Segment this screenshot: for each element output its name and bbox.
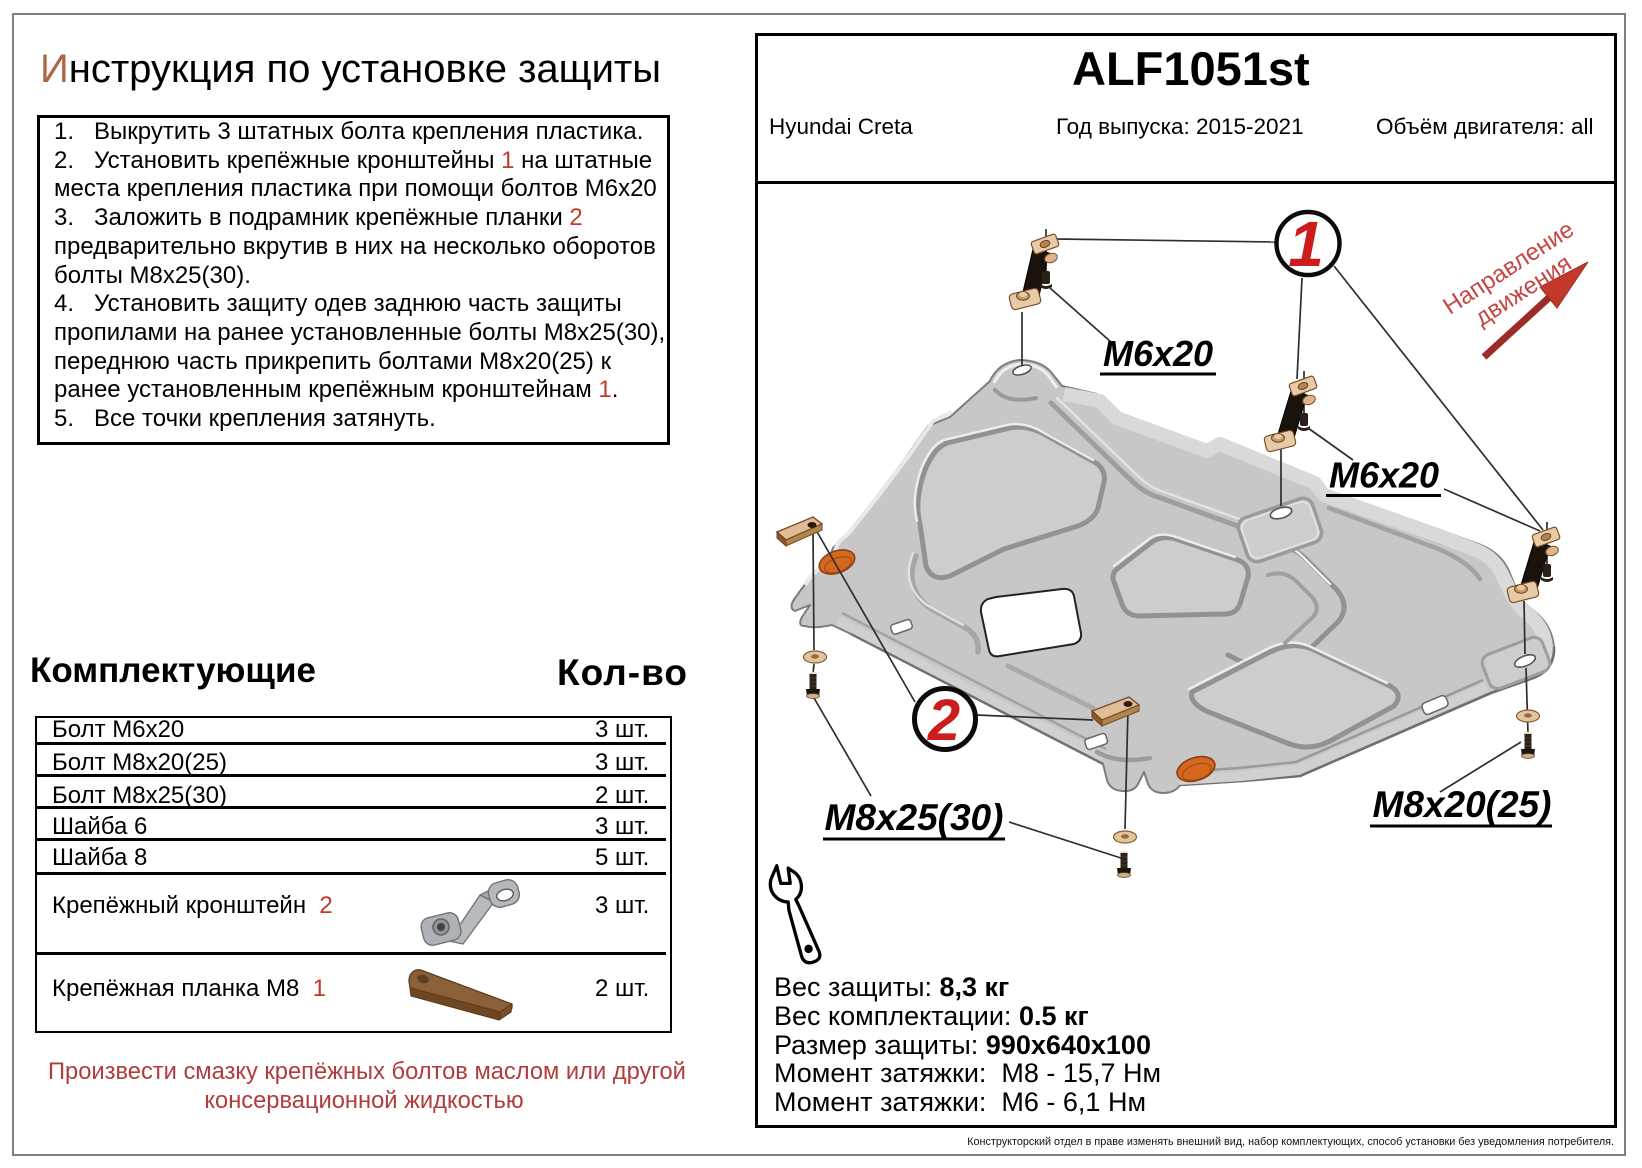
svg-text:M6x20: M6x20 [1329,455,1439,496]
svg-text:2: 2 [927,688,960,753]
svg-text:M6x20: M6x20 [1103,333,1213,374]
svg-text:M8x20(25): M8x20(25) [1373,784,1552,825]
svg-text:M8x25(30): M8x25(30) [825,797,1004,838]
svg-text:1: 1 [1288,208,1324,280]
